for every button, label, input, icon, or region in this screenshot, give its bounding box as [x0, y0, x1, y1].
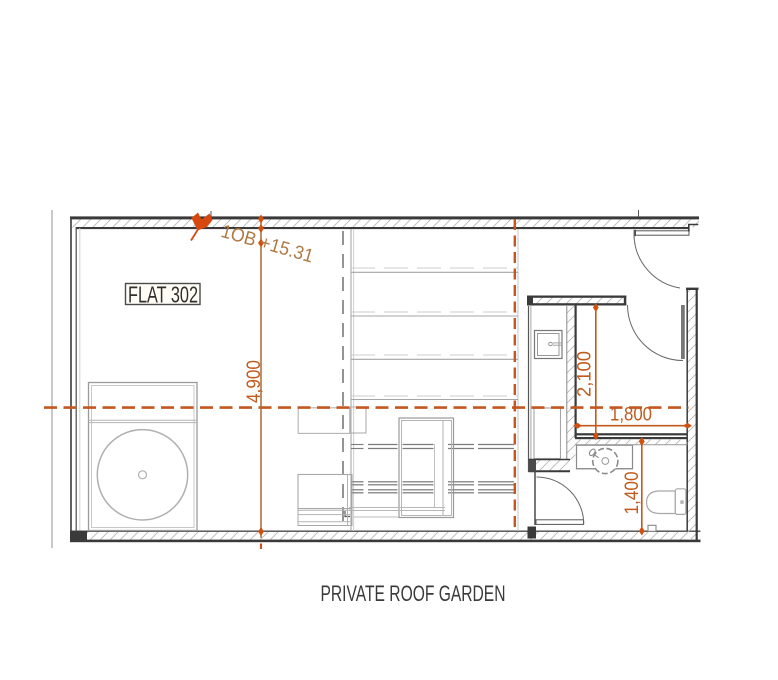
- svg-text:FLAT 302: FLAT 302: [128, 281, 198, 307]
- svg-text:1,800: 1,800: [610, 405, 652, 426]
- svg-text:4,900: 4,900: [243, 360, 265, 403]
- svg-text:1,400: 1,400: [622, 472, 643, 515]
- svg-text:PRIVATE ROOF GARDEN: PRIVATE ROOF GARDEN: [321, 581, 506, 606]
- svg-text:2,100: 2,100: [575, 351, 596, 397]
